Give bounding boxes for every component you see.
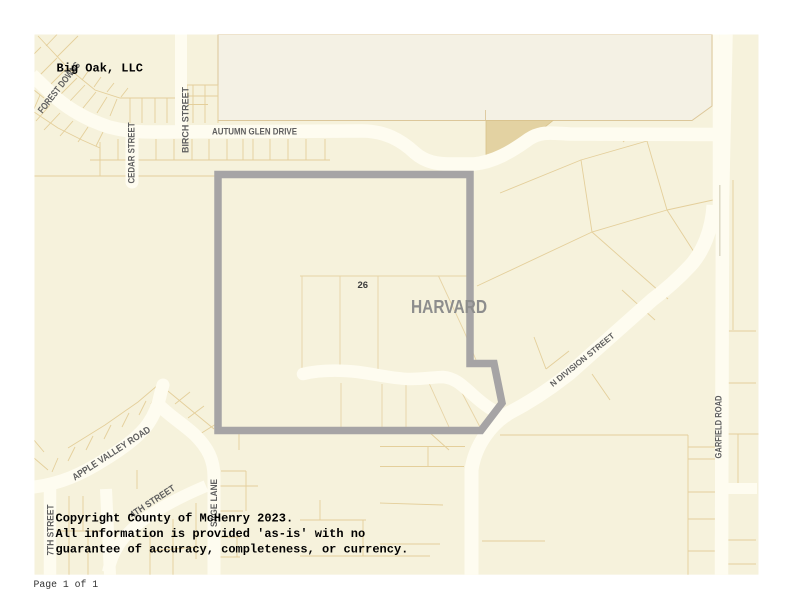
svg-text:guarantee of accuracy, complet: guarantee of accuracy, completeness, or … — [56, 543, 409, 557]
svg-text:HARVARD: HARVARD — [411, 297, 487, 317]
svg-text:All information is provided 'a: All information is provided 'as-is' with… — [56, 527, 366, 541]
svg-text:26: 26 — [358, 280, 369, 291]
svg-text:CEDAR STREET: CEDAR STREET — [127, 122, 138, 183]
svg-text:Big Oak, LLC: Big Oak, LLC — [57, 62, 143, 76]
svg-text:Page 1 of 1: Page 1 of 1 — [34, 579, 99, 590]
svg-text:BIRCH STREET: BIRCH STREET — [181, 87, 192, 153]
svg-text:7TH STREET: 7TH STREET — [45, 504, 56, 555]
svg-text:GARFIELD ROAD: GARFIELD ROAD — [714, 395, 725, 458]
svg-text:Copyright County of McHenry 20: Copyright County of McHenry 2023. — [56, 511, 294, 525]
svg-text:AUTUMN GLEN DRIVE: AUTUMN GLEN DRIVE — [212, 127, 297, 138]
